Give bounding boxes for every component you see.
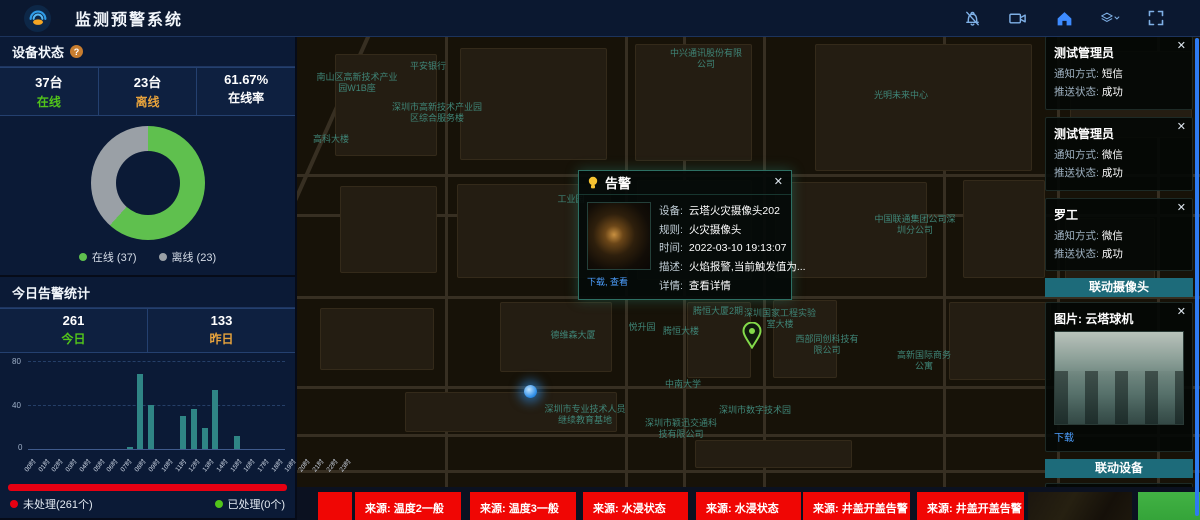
alert-popup-header: 告警 ✕ bbox=[579, 171, 791, 195]
close-icon[interactable]: ✕ bbox=[1177, 307, 1186, 318]
device-donut-chart bbox=[91, 126, 205, 240]
stat-yesterday-label: 昨日 bbox=[148, 330, 295, 347]
close-icon[interactable]: ✕ bbox=[1177, 122, 1186, 133]
alert-popup-body: 下载, 查看 设备: 云塔火灾摄像头202 规则: 火灾摄像头 时间: 2022… bbox=[579, 195, 791, 295]
stat-yesterday-value: 133 bbox=[148, 313, 295, 328]
alert-field-device: 设备: 云塔火灾摄像头202 bbox=[659, 202, 806, 221]
bar-slot bbox=[135, 361, 146, 449]
bar-slot bbox=[71, 361, 82, 449]
unprocessed-label: 未处理(261个) bbox=[23, 496, 93, 512]
stat-online-rate-value: 61.67% bbox=[197, 72, 295, 87]
legend-offline: 离线 (23) bbox=[159, 249, 217, 265]
bar-slot bbox=[103, 361, 114, 449]
alert-source-tile[interactable]: 来源: 井盖开盖告警 bbox=[803, 492, 910, 520]
bar-19时 bbox=[234, 436, 240, 449]
alarm-bulb-icon bbox=[587, 176, 599, 190]
processed-label: 已处理(0个) bbox=[228, 496, 285, 512]
camera-snapshot-image[interactable] bbox=[1054, 331, 1184, 425]
legend-offline-label: 离线 (23) bbox=[172, 249, 217, 265]
bar-slot bbox=[124, 361, 135, 449]
alert-field-desc: 描述: 火焰报警,当前触发值为... bbox=[659, 258, 806, 277]
device-status-stats: 37台 在线 23台 离线 61.67% 在线率 bbox=[0, 67, 295, 116]
left-sidebar: 设备状态 ? 37台 在线 23台 离线 61.67% 在线率 bbox=[0, 36, 297, 520]
map-label: 深圳市颖迅交通科技有限公司 bbox=[641, 418, 721, 441]
today-alerts-title: 今日告警统计 bbox=[12, 283, 90, 302]
bottom-alert-strip: 来源: 温度2一般 来源: 温度3一般 来源: 水浸状态 来源: 水浸状态 来源… bbox=[295, 487, 1200, 520]
bar-slot bbox=[39, 361, 50, 449]
alert-popup-title: 告警 bbox=[605, 173, 768, 192]
device-status-title-row: 设备状态 ? bbox=[0, 36, 295, 67]
bar-14时 bbox=[180, 416, 186, 449]
notification-card: ✕ 罗工 通知方式: 微信 推送状态: 成功 bbox=[1045, 198, 1193, 272]
home-icon[interactable] bbox=[1054, 8, 1074, 28]
bar-slot bbox=[253, 361, 264, 449]
stat-online-value: 37台 bbox=[0, 72, 98, 91]
alert-video-thumbnail[interactable] bbox=[1138, 492, 1200, 520]
alert-source-tile[interactable]: 来源: 温度2一般 bbox=[355, 492, 461, 520]
notification-method-row: 通知方式: 微信 bbox=[1054, 227, 1184, 245]
bar-slot bbox=[199, 361, 210, 449]
alert-source-tile[interactable]: 来源: 水浸状态 bbox=[583, 492, 688, 520]
app-logo-icon bbox=[24, 5, 51, 32]
hour-bar-plot bbox=[28, 361, 285, 449]
today-alerts-panel: 今日告警统计 261 今日 133 昨日 80 40 0 00 bbox=[0, 277, 295, 518]
layers-icon[interactable] bbox=[1100, 8, 1120, 28]
alert-snapshot-links[interactable]: 下载, 查看 bbox=[587, 275, 651, 288]
unprocessed-dot bbox=[10, 500, 18, 508]
alert-snapshot-image[interactable] bbox=[587, 202, 651, 270]
device-status-title: 设备状态 bbox=[12, 42, 64, 61]
notification-name: 测试管理员 bbox=[1054, 125, 1184, 142]
notification-name: 罗工 bbox=[1054, 206, 1184, 223]
stat-today-value: 261 bbox=[0, 313, 147, 328]
bar-11时 bbox=[148, 405, 154, 449]
stat-today: 261 今日 bbox=[0, 309, 148, 352]
linked-cameras-header[interactable]: 联动摄像头 bbox=[1045, 278, 1193, 297]
camera-card-title: 图片: 云塔球机 bbox=[1054, 310, 1184, 327]
notification-name: 测试管理员 bbox=[1054, 44, 1184, 61]
bar-15时 bbox=[191, 409, 197, 449]
close-icon[interactable]: ✕ bbox=[774, 177, 783, 188]
bar-slot bbox=[146, 361, 157, 449]
app-root: 监测预警系统 bbox=[0, 0, 1200, 520]
device-donut-chart-wrap bbox=[0, 116, 295, 240]
notification-method-row: 通知方式: 微信 bbox=[1054, 146, 1184, 164]
device-status-panel: 设备状态 ? 37台 在线 23台 离线 61.67% 在线率 bbox=[0, 36, 295, 275]
stat-offline-value: 23台 bbox=[99, 72, 197, 91]
processed-legend-row: 未处理(261个) 已处理(0个) bbox=[0, 491, 295, 518]
bell-off-icon[interactable] bbox=[962, 8, 982, 28]
donut-legend: 在线 (37) 离线 (23) bbox=[0, 240, 295, 275]
map-building bbox=[695, 440, 852, 468]
bar-09时 bbox=[127, 447, 133, 449]
stat-yesterday: 133 昨日 bbox=[148, 309, 295, 352]
y-tick-0: 0 bbox=[18, 443, 22, 452]
linked-devices-header[interactable]: 联动设备 bbox=[1045, 459, 1193, 478]
bar-slot bbox=[242, 361, 253, 449]
status-badge: 成功 bbox=[1102, 248, 1123, 260]
camera-card: ✕ 图片: 云塔球机 下载 bbox=[1045, 302, 1193, 452]
bar-slot bbox=[167, 361, 178, 449]
map-label: 中兴通讯股份有限公司 bbox=[670, 48, 742, 71]
stat-offline: 23台 离线 bbox=[99, 68, 198, 115]
bar-slot bbox=[231, 361, 242, 449]
today-alerts-stats: 261 今日 133 昨日 bbox=[0, 308, 295, 353]
hour-bar-xlabels: 00时01时02时03时04时05时06时07时08时09时10时11时12时1… bbox=[28, 452, 285, 474]
bar-16时 bbox=[202, 428, 208, 449]
legend-offline-dot bbox=[159, 253, 167, 261]
map-label: 西部同创科技有限公司 bbox=[795, 334, 859, 357]
legend-online-dot bbox=[79, 253, 87, 261]
map-label: 深圳市专业技术人员继续教育基地 bbox=[541, 404, 629, 427]
bar-slot bbox=[60, 361, 71, 449]
map-label: 深圳市高新技术产业园区综合服务楼 bbox=[391, 102, 483, 125]
notification-status-row: 推送状态: 成功 bbox=[1054, 83, 1184, 101]
bar-slot bbox=[221, 361, 232, 449]
view-detail-link[interactable]: 查看详情 bbox=[689, 277, 731, 296]
legend-online: 在线 (37) bbox=[79, 249, 137, 265]
legend-online-label: 在线 (37) bbox=[92, 249, 137, 265]
stat-online-label: 在线 bbox=[0, 93, 98, 110]
map-label: 平安银行 bbox=[398, 61, 458, 72]
notification-card: ✕ 测试管理员 通知方式: 短信 推送状态: 成功 bbox=[1045, 36, 1193, 110]
alert-source-tile[interactable]: 来源: 水浸状态 bbox=[696, 492, 801, 520]
stat-online-rate-label: 在线率 bbox=[197, 89, 295, 106]
alert-field-rule: 规则: 火灾摄像头 bbox=[659, 221, 806, 240]
stat-offline-label: 离线 bbox=[99, 93, 197, 110]
bar-slot bbox=[274, 361, 285, 449]
map-building bbox=[815, 44, 1032, 171]
status-badge: 成功 bbox=[1102, 167, 1123, 179]
help-icon[interactable]: ? bbox=[70, 45, 83, 58]
map-building bbox=[963, 180, 1045, 278]
bar-slot bbox=[82, 361, 93, 449]
map-label: 深圳市数字技术园 bbox=[700, 405, 810, 416]
hourly-alert-bar-chart: 80 40 0 bbox=[28, 361, 285, 450]
close-icon[interactable]: ✕ bbox=[1177, 41, 1186, 52]
map-building bbox=[949, 302, 1051, 380]
stat-online: 37台 在线 bbox=[0, 68, 99, 115]
alert-source-tile[interactable]: 来源: 井盖开盖告警 bbox=[917, 492, 1024, 520]
map-label: 腾恒大楼 bbox=[653, 326, 709, 337]
alert-popup: 告警 ✕ 下载, 查看 设备: 云塔火灾摄像头202 规则: 火灾摄像头 bbox=[578, 170, 792, 300]
alert-field-detail: 详情: 查看详情 bbox=[659, 277, 806, 296]
bar-10时 bbox=[137, 374, 143, 449]
header: 监测预警系统 bbox=[0, 0, 1200, 37]
map-label: 光明未来中心 bbox=[855, 90, 947, 101]
processed-legend: 已处理(0个) bbox=[215, 496, 285, 512]
bar-slot bbox=[156, 361, 167, 449]
alert-thumbnail-col: 下载, 查看 bbox=[587, 202, 651, 295]
map-label: 高科大楼 bbox=[303, 134, 359, 145]
bar-slot bbox=[49, 361, 60, 449]
fullscreen-toggle-icon[interactable] bbox=[1146, 8, 1166, 28]
map-label: 高新国际商务公寓 bbox=[893, 350, 955, 373]
bar-17时 bbox=[212, 390, 218, 449]
download-link[interactable]: 下载 bbox=[1054, 429, 1184, 444]
today-alerts-title-row: 今日告警统计 bbox=[0, 277, 295, 308]
map-building bbox=[320, 308, 434, 370]
notification-status-row: 推送状态: 成功 bbox=[1054, 245, 1184, 263]
bar-slot bbox=[178, 361, 189, 449]
alert-field-time: 时间: 2022-03-10 19:13:07 bbox=[659, 239, 806, 258]
map-label: 德维森大厦 bbox=[538, 330, 608, 341]
stat-today-label: 今日 bbox=[0, 330, 147, 347]
close-icon[interactable]: ✕ bbox=[1177, 203, 1186, 214]
map-label: 南山区高新技术产业园W1B座 bbox=[315, 72, 399, 95]
bar-slot bbox=[114, 361, 125, 449]
vertical-scrollbar[interactable] bbox=[1195, 38, 1199, 516]
video-camera-icon[interactable] bbox=[1008, 8, 1028, 28]
alert-video-thumbnail[interactable] bbox=[1028, 492, 1132, 520]
notification-status-row: 推送状态: 成功 bbox=[1054, 164, 1184, 182]
page-title: 监测预警系统 bbox=[75, 6, 183, 30]
right-sidebar: ✕ 测试管理员 通知方式: 短信 推送状态: 成功 ✕ 测试管理员 通知方式: … bbox=[1045, 36, 1193, 492]
map-label: 中国联通集团公司深圳分公司 bbox=[873, 214, 957, 237]
green-pin-marker[interactable] bbox=[742, 322, 762, 354]
unprocessed-progress-bar bbox=[8, 484, 287, 491]
alert-fields: 设备: 云塔火灾摄像头202 规则: 火灾摄像头 时间: 2022-03-10 … bbox=[659, 202, 806, 295]
bar-slot bbox=[210, 361, 221, 449]
map-building bbox=[340, 186, 437, 273]
notification-method-row: 通知方式: 短信 bbox=[1054, 65, 1184, 83]
processed-dot bbox=[215, 500, 223, 508]
bar-slot bbox=[28, 361, 39, 449]
notification-card: ✕ 测试管理员 通知方式: 微信 推送状态: 成功 bbox=[1045, 117, 1193, 191]
y-tick-80: 80 bbox=[12, 357, 21, 366]
bar-slot bbox=[263, 361, 274, 449]
bar-slot bbox=[189, 361, 200, 449]
blue-location-marker[interactable] bbox=[524, 385, 537, 398]
header-actions bbox=[962, 8, 1166, 28]
bar-slot bbox=[92, 361, 103, 449]
alert-source-tile[interactable]: 来源: 温度3一般 bbox=[470, 492, 576, 520]
alert-tile-truncated[interactable] bbox=[318, 492, 352, 520]
stat-online-rate: 61.67% 在线率 bbox=[197, 68, 295, 115]
y-tick-40: 40 bbox=[12, 401, 21, 410]
map-label: 中南大学 bbox=[655, 379, 711, 390]
status-badge: 成功 bbox=[1102, 86, 1123, 98]
chevron-down-icon bbox=[1115, 16, 1119, 18]
unprocessed-legend: 未处理(261个) bbox=[10, 496, 93, 512]
